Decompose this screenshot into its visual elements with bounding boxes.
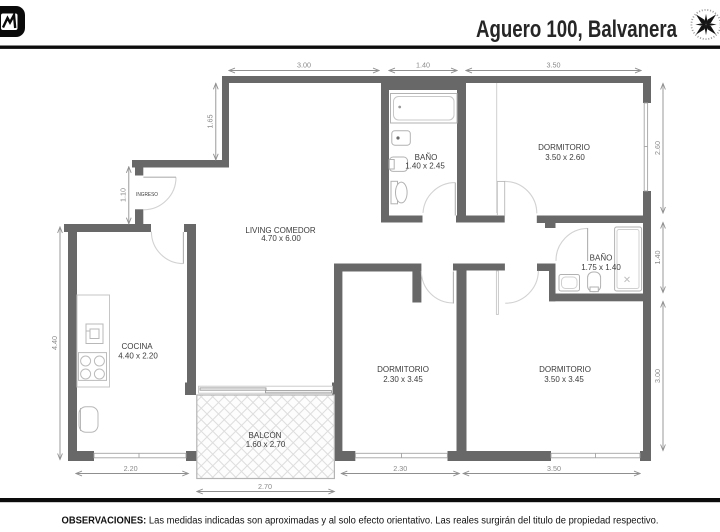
svg-text:1.40: 1.40: [653, 251, 662, 265]
svg-text:DORMITORIO: DORMITORIO: [538, 143, 590, 152]
svg-text:DORMITORIO: DORMITORIO: [539, 365, 591, 374]
svg-text:3.00: 3.00: [653, 369, 662, 383]
svg-text:BALCÓN: BALCÓN: [249, 431, 282, 440]
svg-text:2.30 x 3.45: 2.30 x 3.45: [383, 375, 423, 384]
svg-text:3.50: 3.50: [547, 464, 561, 473]
svg-text:4.70 x 6.00: 4.70 x 6.00: [261, 234, 301, 243]
svg-text:2.70: 2.70: [258, 482, 272, 491]
svg-text:3.50 x 3.45: 3.50 x 3.45: [544, 375, 584, 384]
svg-text:2.60: 2.60: [653, 141, 662, 155]
svg-text:3.50 x 2.60: 3.50 x 2.60: [545, 153, 585, 162]
svg-text:COCINA: COCINA: [121, 342, 153, 351]
svg-text:4.40: 4.40: [50, 336, 59, 350]
svg-text:BAÑO: BAÑO: [590, 254, 613, 263]
svg-text:1.65: 1.65: [205, 115, 214, 129]
svg-text:1.60 x 2.70: 1.60 x 2.70: [246, 440, 286, 449]
svg-text:3.00: 3.00: [297, 61, 311, 70]
svg-text:DORMITORIO: DORMITORIO: [377, 365, 429, 374]
svg-text:2.30: 2.30: [393, 464, 407, 473]
svg-text:3.50: 3.50: [547, 61, 561, 70]
svg-text:4.40 x 2.20: 4.40 x 2.20: [118, 352, 158, 361]
svg-text:1.75 x 1.40: 1.75 x 1.40: [581, 263, 621, 272]
svg-text:1.10: 1.10: [118, 188, 127, 202]
svg-text:Aguero 100, Balvanera: Aguero 100, Balvanera: [476, 16, 677, 43]
svg-text:1.40 x 2.45: 1.40 x 2.45: [405, 161, 445, 170]
svg-text:INGRESO: INGRESO: [136, 192, 159, 198]
svg-text:1.40: 1.40: [416, 61, 430, 70]
svg-text:OBSERVACIONES: Las medidas ind: OBSERVACIONES: Las medidas indicadas son…: [62, 516, 659, 527]
svg-text:2.20: 2.20: [124, 464, 138, 473]
